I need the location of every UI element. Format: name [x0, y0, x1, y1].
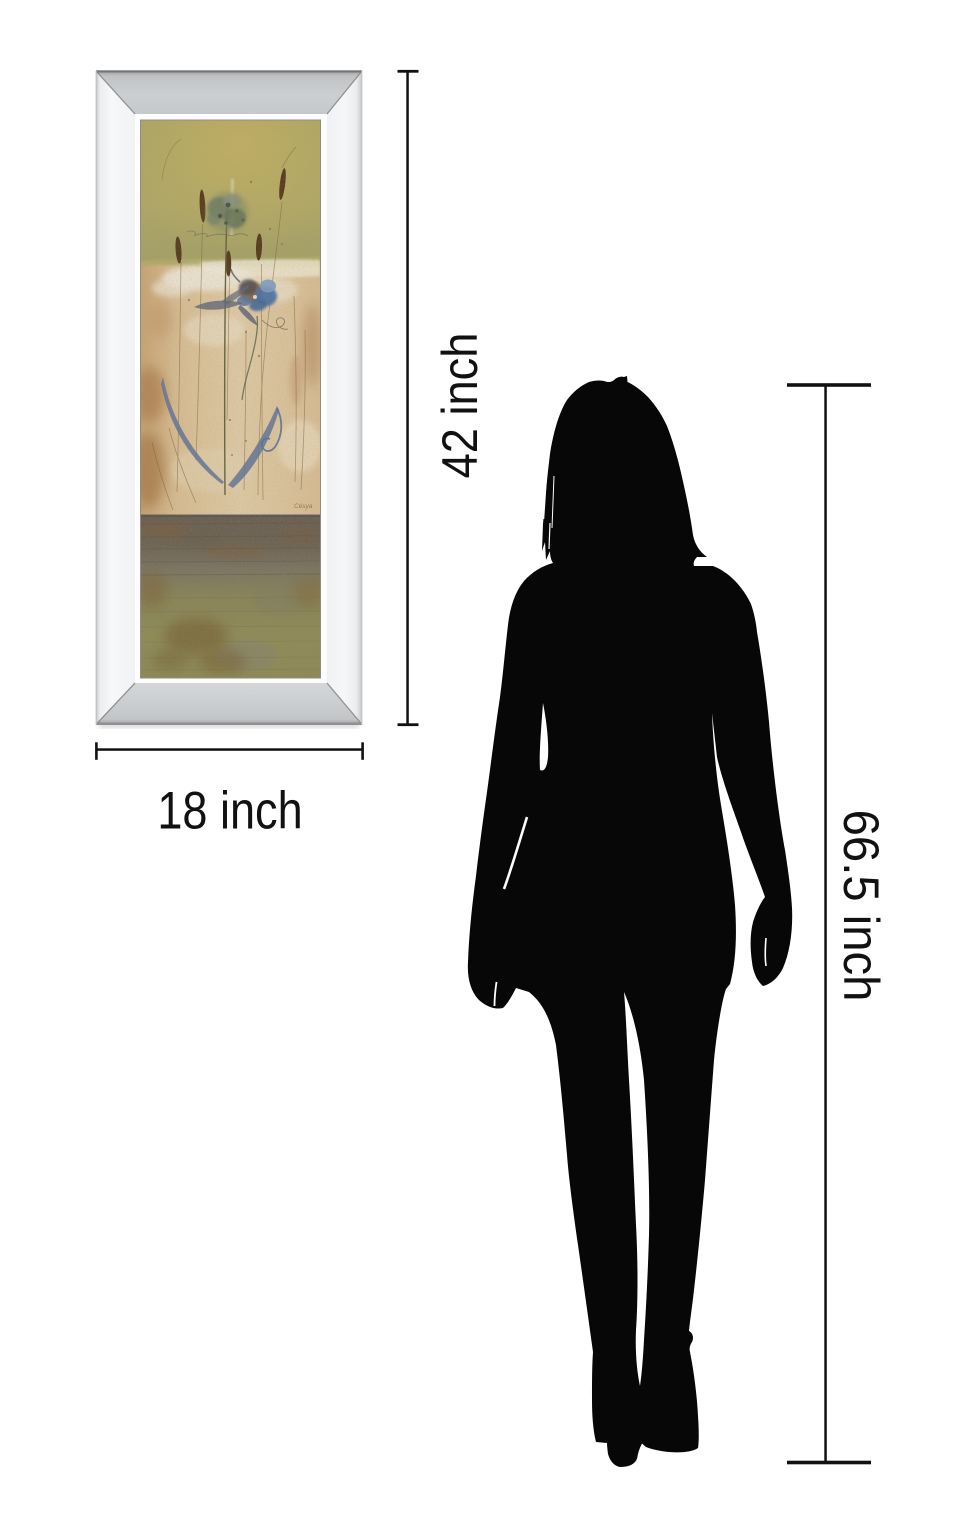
svg-text:18 inch: 18 inch: [157, 781, 302, 840]
svg-text:66.5 inch: 66.5 inch: [833, 810, 889, 1002]
svg-text:42 inch: 42 inch: [433, 333, 489, 479]
